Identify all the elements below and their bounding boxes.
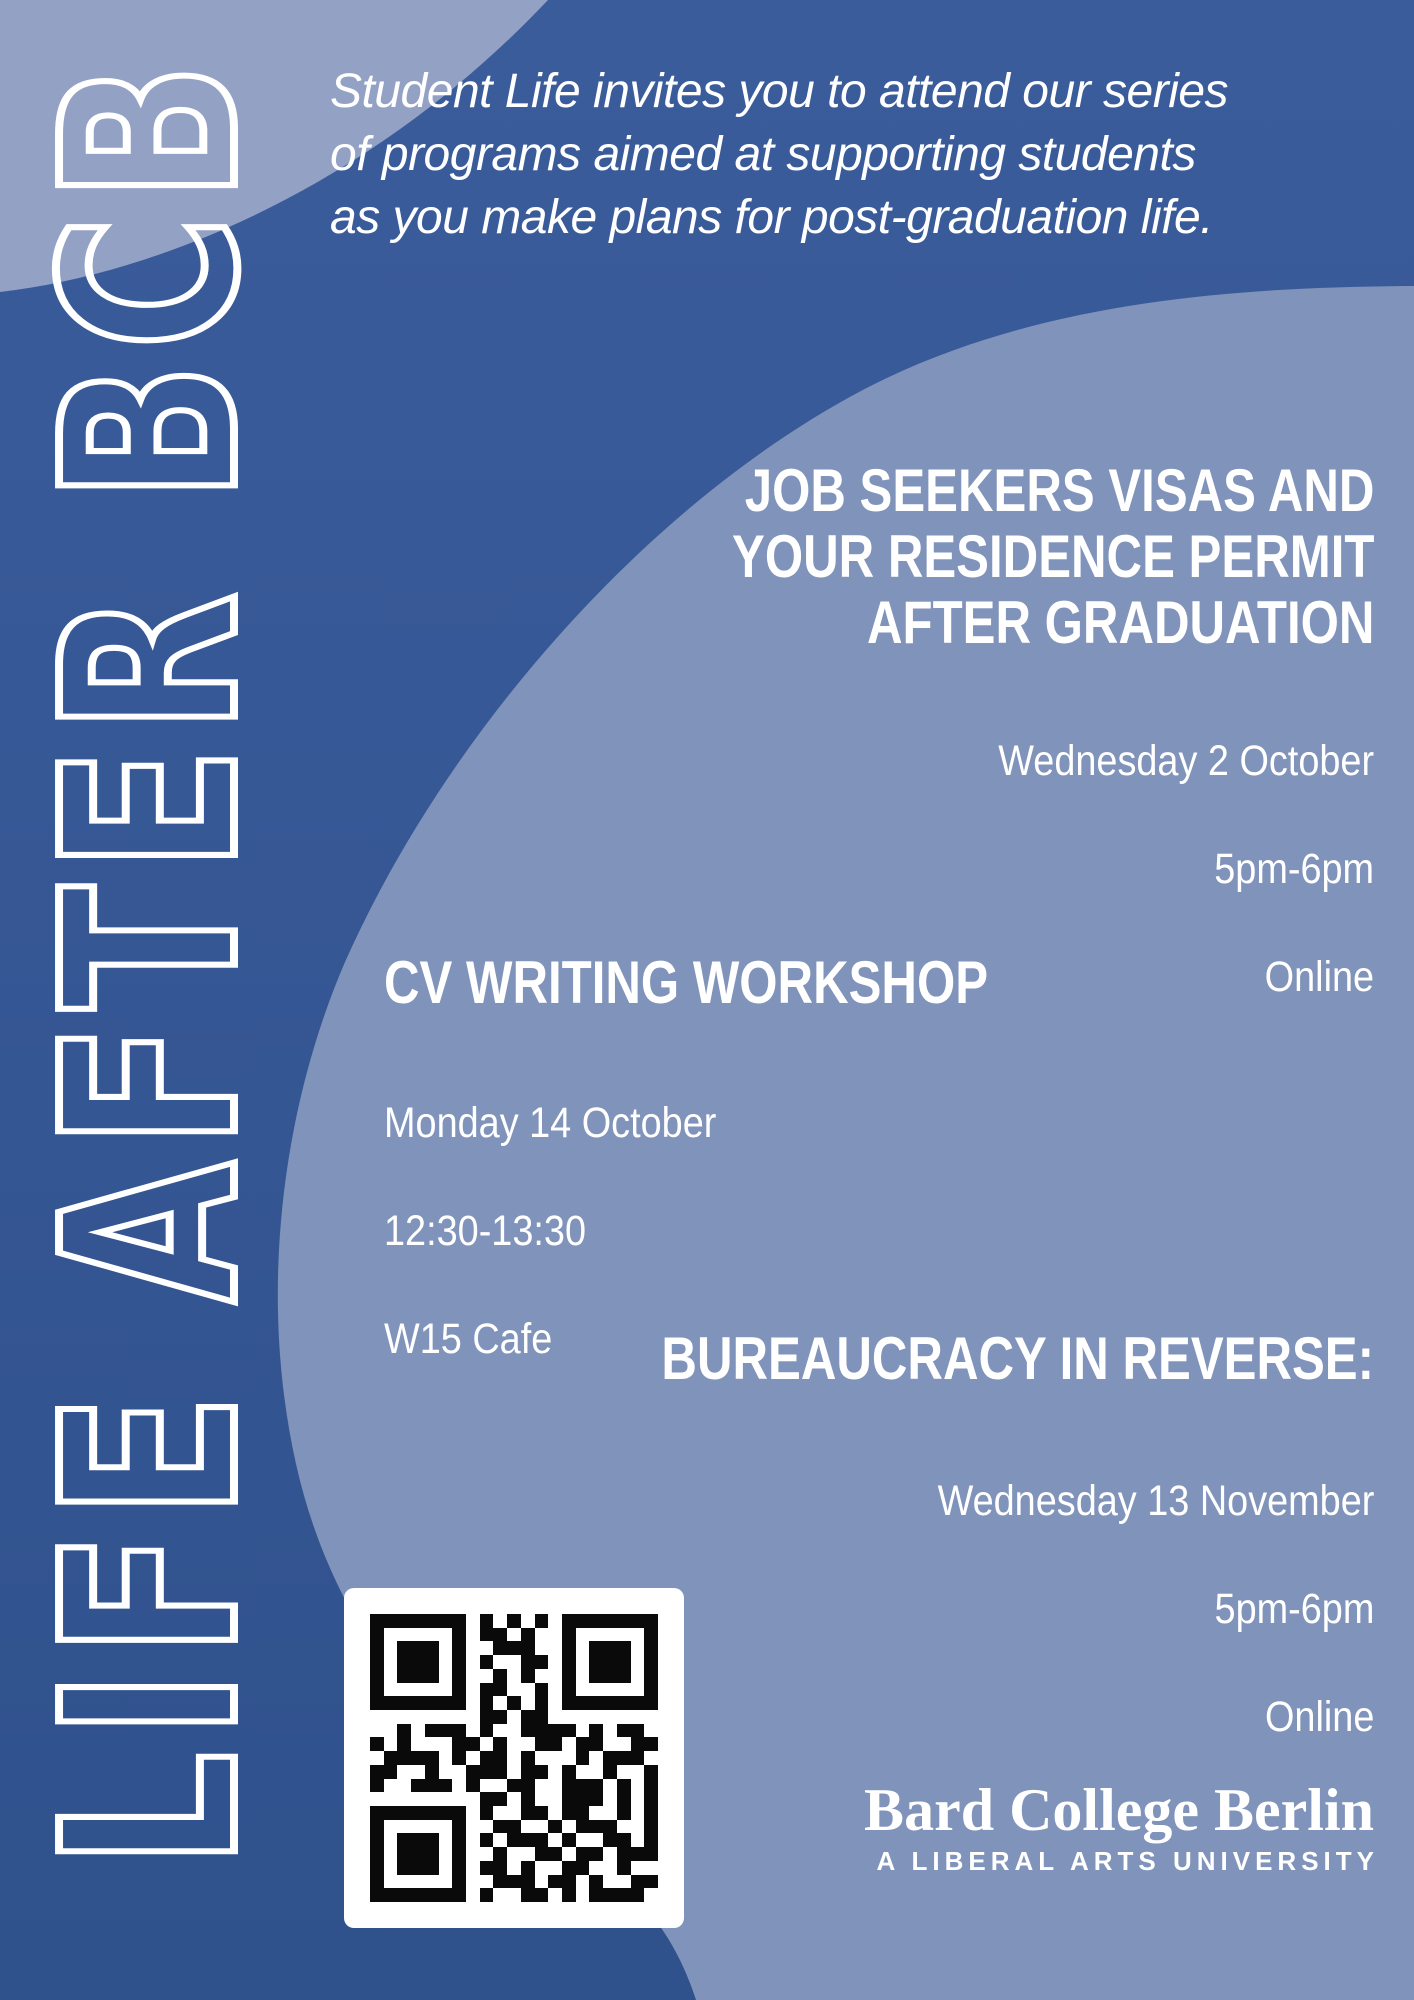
qr-module: [562, 1751, 576, 1765]
qr-module: [411, 1655, 425, 1669]
qr-module: [452, 1765, 466, 1779]
qr-module: [617, 1792, 631, 1806]
qr-module: [535, 1875, 549, 1889]
qr-module: [493, 1669, 507, 1683]
qr-module: [466, 1888, 480, 1902]
qr-module: [507, 1847, 521, 1861]
qr-module: [507, 1641, 521, 1655]
qr-module: [439, 1765, 453, 1779]
qr-module: [452, 1820, 466, 1834]
qr-module: [521, 1614, 535, 1628]
qr-module: [425, 1806, 439, 1820]
qr-module: [425, 1614, 439, 1628]
qr-module: [644, 1875, 658, 1889]
qr-module: [480, 1655, 494, 1669]
qr-module: [617, 1888, 631, 1902]
qr-module: [589, 1683, 603, 1697]
qr-module: [562, 1628, 576, 1642]
qr-module: [466, 1751, 480, 1765]
qr-module: [548, 1710, 562, 1724]
qr-module: [411, 1833, 425, 1847]
event-bureaucracy-in-reverse: BUREAUCRACY IN REVERSE:: [505, 1326, 1374, 1392]
qr-module: [370, 1710, 384, 1724]
qr-module: [493, 1833, 507, 1847]
qr-module: [535, 1820, 549, 1834]
qr-module: [576, 1696, 590, 1710]
qr-module: [397, 1875, 411, 1889]
qr-module: [384, 1724, 398, 1738]
qr-module: [411, 1751, 425, 1765]
qr-module: [589, 1669, 603, 1683]
qr-module: [521, 1683, 535, 1697]
qr-module: [576, 1628, 590, 1642]
qr-module: [411, 1683, 425, 1697]
qr-module: [480, 1861, 494, 1875]
qr-module: [603, 1833, 617, 1847]
qr-module: [466, 1765, 480, 1779]
qr-module: [480, 1888, 494, 1902]
qr-module: [644, 1888, 658, 1902]
qr-module: [439, 1683, 453, 1697]
qr-module: [521, 1710, 535, 1724]
qr-module: [480, 1683, 494, 1697]
qr-module: [425, 1765, 439, 1779]
qr-module: [452, 1737, 466, 1751]
qr-module: [535, 1806, 549, 1820]
qr-module: [644, 1683, 658, 1697]
qr-module: [507, 1710, 521, 1724]
qr-module: [631, 1847, 645, 1861]
vertical-title: LIFE AFTER BCB: [12, 49, 291, 1868]
qr-module: [493, 1683, 507, 1697]
qr-module: [535, 1696, 549, 1710]
logo-tagline: A LIBERAL ARTS UNIVERSITY: [864, 1846, 1379, 1877]
qr-module: [370, 1696, 384, 1710]
qr-module: [617, 1847, 631, 1861]
qr-module: [535, 1669, 549, 1683]
qr-module: [507, 1888, 521, 1902]
qr-module: [589, 1820, 603, 1834]
qr-module: [548, 1792, 562, 1806]
qr-module: [397, 1655, 411, 1669]
qr-module: [466, 1683, 480, 1697]
qr-module: [480, 1820, 494, 1834]
qr-module: [617, 1875, 631, 1889]
qr-module: [548, 1641, 562, 1655]
qr-module: [452, 1792, 466, 1806]
qr-module: [439, 1628, 453, 1642]
qr-module: [439, 1751, 453, 1765]
qr-module: [631, 1628, 645, 1642]
qr-module: [576, 1710, 590, 1724]
qr-module: [521, 1820, 535, 1834]
qr-module: [493, 1628, 507, 1642]
qr-module: [631, 1710, 645, 1724]
qr-module: [603, 1737, 617, 1751]
qr-module: [507, 1875, 521, 1889]
event-title: BUREAUCRACY IN REVERSE:: [661, 1326, 1374, 1392]
qr-module: [480, 1792, 494, 1806]
qr-module: [589, 1696, 603, 1710]
qr-module: [452, 1724, 466, 1738]
qr-module: [507, 1820, 521, 1834]
qr-module: [589, 1833, 603, 1847]
qr-module: [466, 1861, 480, 1875]
qr-module: [384, 1683, 398, 1697]
qr-module: [521, 1696, 535, 1710]
qr-module: [397, 1710, 411, 1724]
qr-module: [439, 1710, 453, 1724]
qr-module: [384, 1655, 398, 1669]
qr-module: [644, 1806, 658, 1820]
qr-module: [562, 1779, 576, 1793]
qr-module: [480, 1628, 494, 1642]
qr-module: [452, 1888, 466, 1902]
qr-module: [507, 1614, 521, 1628]
qr-module: [521, 1641, 535, 1655]
qr-module: [466, 1737, 480, 1751]
qr-module: [576, 1751, 590, 1765]
qr-module: [370, 1861, 384, 1875]
qr-module: [466, 1710, 480, 1724]
qr-module: [631, 1861, 645, 1875]
qr-module: [644, 1847, 658, 1861]
qr-module: [384, 1806, 398, 1820]
qr-module: [397, 1806, 411, 1820]
poster-canvas: LIFE AFTER BCB Student Life invites you …: [0, 0, 1414, 2000]
qr-module: [411, 1888, 425, 1902]
qr-module: [507, 1669, 521, 1683]
qr-module: [631, 1641, 645, 1655]
qr-module: [521, 1765, 535, 1779]
qr-module: [370, 1888, 384, 1902]
qr-module: [548, 1765, 562, 1779]
qr-module: [370, 1737, 384, 1751]
qr-module: [603, 1792, 617, 1806]
qr-module: [411, 1628, 425, 1642]
qr-module: [507, 1765, 521, 1779]
qr-module: [631, 1669, 645, 1683]
qr-module: [370, 1751, 384, 1765]
qr-module: [466, 1847, 480, 1861]
qr-module: [644, 1833, 658, 1847]
qr-module: [480, 1833, 494, 1847]
qr-module: [603, 1888, 617, 1902]
qr-module: [425, 1641, 439, 1655]
qr-module: [631, 1779, 645, 1793]
qr-module: [562, 1669, 576, 1683]
qr-module: [521, 1806, 535, 1820]
qr-module: [603, 1641, 617, 1655]
qr-module: [603, 1779, 617, 1793]
qr-module: [617, 1683, 631, 1697]
qr-module: [439, 1833, 453, 1847]
qr-module: [466, 1614, 480, 1628]
qr-module: [439, 1888, 453, 1902]
qr-module: [603, 1820, 617, 1834]
event-date: Wednesday 13 November: [937, 1474, 1374, 1528]
qr-module: [384, 1833, 398, 1847]
qr-module: [576, 1614, 590, 1628]
qr-module: [548, 1847, 562, 1861]
qr-module: [384, 1751, 398, 1765]
qr-module: [397, 1628, 411, 1642]
qr-module: [411, 1806, 425, 1820]
qr-module: [411, 1641, 425, 1655]
qr-module: [452, 1628, 466, 1642]
qr-module: [617, 1820, 631, 1834]
qr-module: [480, 1765, 494, 1779]
qr-module: [535, 1737, 549, 1751]
qr-module: [397, 1861, 411, 1875]
qr-module: [631, 1888, 645, 1902]
qr-module: [466, 1792, 480, 1806]
qr-module: [480, 1614, 494, 1628]
qr-module: [480, 1875, 494, 1889]
qr-module: [397, 1669, 411, 1683]
qr-module: [452, 1779, 466, 1793]
qr-module: [644, 1641, 658, 1655]
qr-module: [507, 1655, 521, 1669]
qr-module: [452, 1696, 466, 1710]
qr-module: [397, 1641, 411, 1655]
qr-module: [562, 1655, 576, 1669]
qr-module: [603, 1628, 617, 1642]
qr-module: [631, 1724, 645, 1738]
qr-module: [425, 1820, 439, 1834]
qr-module: [384, 1792, 398, 1806]
qr-module: [644, 1779, 658, 1793]
qr-module: [521, 1655, 535, 1669]
qr-module: [384, 1737, 398, 1751]
qr-module: [644, 1655, 658, 1669]
qr-module: [425, 1724, 439, 1738]
qr-module: [548, 1683, 562, 1697]
qr-module: [411, 1614, 425, 1628]
qr-module: [617, 1641, 631, 1655]
qr-module: [535, 1888, 549, 1902]
qr-module: [507, 1628, 521, 1642]
qr-module: [603, 1724, 617, 1738]
qr-module: [548, 1751, 562, 1765]
qr-module: [493, 1861, 507, 1875]
qr-module: [384, 1779, 398, 1793]
qr-module: [589, 1751, 603, 1765]
qr-module: [617, 1696, 631, 1710]
qr-module: [397, 1683, 411, 1697]
qr-module: [370, 1655, 384, 1669]
qr-module: [535, 1765, 549, 1779]
qr-module: [493, 1641, 507, 1655]
qr-module: [576, 1779, 590, 1793]
qr-module: [521, 1861, 535, 1875]
qr-module: [631, 1737, 645, 1751]
qr-module: [425, 1737, 439, 1751]
qr-module: [589, 1614, 603, 1628]
qr-module: [644, 1669, 658, 1683]
qr-module: [617, 1737, 631, 1751]
qr-module: [507, 1724, 521, 1738]
qr-module: [411, 1792, 425, 1806]
qr-module: [507, 1833, 521, 1847]
qr-module: [548, 1724, 562, 1738]
qr-module: [493, 1779, 507, 1793]
qr-module: [439, 1614, 453, 1628]
qr-module: [507, 1696, 521, 1710]
qr-module: [535, 1683, 549, 1697]
qr-module: [562, 1833, 576, 1847]
qr-module: [384, 1765, 398, 1779]
qr-module: [493, 1888, 507, 1902]
event-cv-workshop: CV WRITING WORKSHOP: [384, 950, 1121, 1016]
qr-module: [589, 1655, 603, 1669]
qr-module: [589, 1792, 603, 1806]
qr-module: [480, 1751, 494, 1765]
qr-module: [370, 1779, 384, 1793]
qr-module: [535, 1655, 549, 1669]
qr-module: [644, 1696, 658, 1710]
qr-module: [370, 1628, 384, 1642]
qr-module: [631, 1820, 645, 1834]
qr-module: [603, 1655, 617, 1669]
qr-module: [466, 1696, 480, 1710]
qr-module: [384, 1669, 398, 1683]
qr-module: [452, 1641, 466, 1655]
qr-module: [439, 1724, 453, 1738]
event-time: 5pm-6pm: [998, 842, 1374, 896]
qr-module: [548, 1669, 562, 1683]
qr-module: [617, 1614, 631, 1628]
qr-module: [384, 1710, 398, 1724]
qr-module: [535, 1847, 549, 1861]
qr-module: [439, 1792, 453, 1806]
qr-module: [589, 1888, 603, 1902]
qr-module: [576, 1765, 590, 1779]
qr-module: [617, 1669, 631, 1683]
qr-module: [507, 1861, 521, 1875]
qr-module: [548, 1614, 562, 1628]
qr-module: [507, 1779, 521, 1793]
qr-module: [397, 1888, 411, 1902]
qr-module: [493, 1710, 507, 1724]
qr-module: [631, 1875, 645, 1889]
qr-module: [397, 1724, 411, 1738]
qr-module: [576, 1861, 590, 1875]
qr-module: [439, 1806, 453, 1820]
qr-module: [493, 1765, 507, 1779]
qr-module: [507, 1737, 521, 1751]
event-title: JOB SEEKERS VISAS AND YOUR RESIDENCE PER…: [732, 458, 1374, 656]
qr-module: [370, 1669, 384, 1683]
qr-module: [507, 1792, 521, 1806]
qr-module: [535, 1724, 549, 1738]
qr-module: [617, 1710, 631, 1724]
qr-module: [644, 1737, 658, 1751]
qr-module: [576, 1888, 590, 1902]
qr-module: [644, 1820, 658, 1834]
qr-module: [535, 1614, 549, 1628]
qr-module: [562, 1875, 576, 1889]
event-schedule: Wednesday 13 November 5pm-6pm Online: [937, 1420, 1374, 1798]
qr-module: [480, 1847, 494, 1861]
qr-module: [411, 1861, 425, 1875]
qr-module: [480, 1779, 494, 1793]
qr-module: [548, 1779, 562, 1793]
qr-module: [370, 1614, 384, 1628]
qr-module: [521, 1888, 535, 1902]
qr-module: [589, 1861, 603, 1875]
qr-module: [493, 1806, 507, 1820]
qr-module: [644, 1710, 658, 1724]
qr-module: [493, 1696, 507, 1710]
qr-module: [548, 1861, 562, 1875]
logo-name: Bard College Berlin: [864, 1778, 1374, 1842]
qr-module: [439, 1641, 453, 1655]
qr-module: [535, 1779, 549, 1793]
qr-module: [384, 1847, 398, 1861]
qr-module: [425, 1696, 439, 1710]
qr-module: [411, 1765, 425, 1779]
qr-module: [603, 1614, 617, 1628]
qr-module: [493, 1792, 507, 1806]
qr-module: [562, 1792, 576, 1806]
qr-module: [507, 1751, 521, 1765]
qr-module: [466, 1833, 480, 1847]
event-title: CV WRITING WORKSHOP: [384, 950, 988, 1016]
qr-module: [562, 1765, 576, 1779]
qr-module: [617, 1806, 631, 1820]
qr-code: [344, 1588, 684, 1928]
qr-module: [562, 1737, 576, 1751]
qr-module: [631, 1833, 645, 1847]
qr-module: [411, 1696, 425, 1710]
qr-module: [384, 1628, 398, 1642]
qr-module: [617, 1765, 631, 1779]
qr-module: [603, 1710, 617, 1724]
qr-module: [562, 1696, 576, 1710]
qr-module: [452, 1833, 466, 1847]
logo-bard-college-berlin: Bard College Berlin A LIBERAL ARTS UNIVE…: [864, 1778, 1374, 1877]
event-time: 5pm-6pm: [937, 1582, 1374, 1636]
qr-module: [439, 1779, 453, 1793]
qr-module: [562, 1724, 576, 1738]
qr-module: [439, 1820, 453, 1834]
qr-module: [617, 1655, 631, 1669]
event-date: Wednesday 2 October: [998, 734, 1374, 788]
qr-module: [535, 1751, 549, 1765]
qr-module: [397, 1696, 411, 1710]
qr-module: [466, 1628, 480, 1642]
qr-module: [576, 1875, 590, 1889]
qr-module: [480, 1641, 494, 1655]
qr-module: [617, 1861, 631, 1875]
qr-module: [452, 1806, 466, 1820]
qr-module: [562, 1820, 576, 1834]
qr-module: [411, 1669, 425, 1683]
qr-module: [370, 1683, 384, 1697]
qr-module: [370, 1847, 384, 1861]
qr-module: [535, 1833, 549, 1847]
qr-module: [589, 1779, 603, 1793]
qr-module: [384, 1875, 398, 1889]
qr-module: [452, 1875, 466, 1889]
qr-module: [452, 1710, 466, 1724]
qr-module: [576, 1683, 590, 1697]
qr-module: [576, 1847, 590, 1861]
qr-module: [548, 1655, 562, 1669]
qr-module: [397, 1765, 411, 1779]
qr-module: [644, 1628, 658, 1642]
